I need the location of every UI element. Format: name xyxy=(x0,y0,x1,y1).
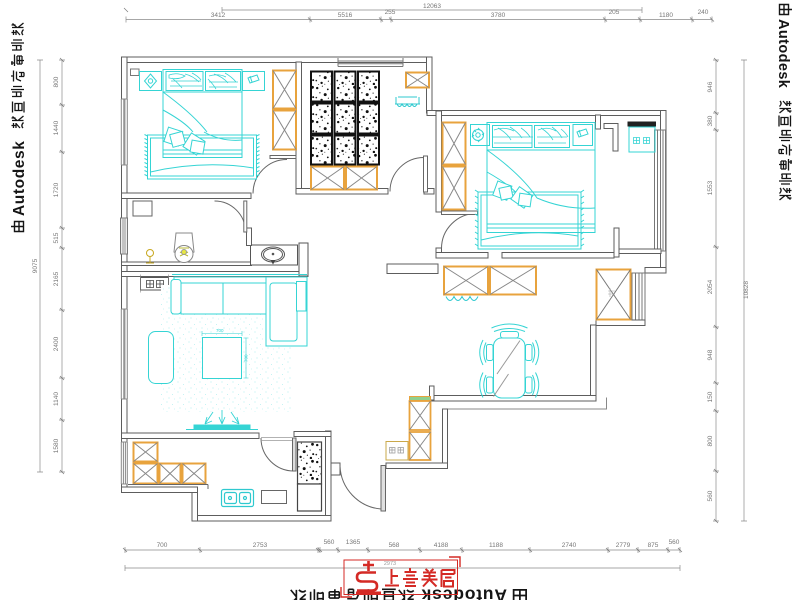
svg-text:2400: 2400 xyxy=(53,336,60,351)
svg-text:3780: 3780 xyxy=(491,12,506,19)
svg-text:2973: 2973 xyxy=(384,561,396,567)
svg-text:1140: 1140 xyxy=(53,392,60,406)
svg-text:1180: 1180 xyxy=(659,12,673,19)
svg-text:255: 255 xyxy=(385,9,396,16)
svg-text:1553: 1553 xyxy=(707,180,714,195)
svg-text:Autodesk: Autodesk xyxy=(775,19,791,89)
svg-text:1720: 1720 xyxy=(53,182,60,197)
svg-text:560: 560 xyxy=(669,539,680,546)
svg-text:700: 700 xyxy=(244,354,249,362)
svg-text:568: 568 xyxy=(389,542,400,549)
svg-text:10828: 10828 xyxy=(743,281,750,299)
svg-text:Autodesk: Autodesk xyxy=(421,586,507,600)
svg-text:2779: 2779 xyxy=(616,542,631,549)
svg-text:12063: 12063 xyxy=(423,3,441,10)
svg-text:946: 946 xyxy=(707,81,714,92)
svg-text:5516: 5516 xyxy=(338,12,353,19)
svg-text:948: 948 xyxy=(707,349,714,360)
svg-text:800: 800 xyxy=(53,76,60,87)
svg-text:9075: 9075 xyxy=(32,258,39,273)
svg-text:1580: 1580 xyxy=(53,438,60,453)
svg-text:700: 700 xyxy=(157,542,168,549)
svg-text:1440: 1440 xyxy=(53,120,60,135)
svg-text:2165: 2165 xyxy=(53,271,60,286)
svg-text:700: 700 xyxy=(216,328,224,333)
svg-text:800: 800 xyxy=(707,435,714,446)
svg-text:380: 380 xyxy=(707,115,714,126)
svg-text:240: 240 xyxy=(698,9,709,16)
svg-text:1188: 1188 xyxy=(489,542,503,549)
svg-text:515: 515 xyxy=(53,232,60,243)
svg-text:560: 560 xyxy=(707,490,714,501)
svg-text:2054: 2054 xyxy=(707,279,714,294)
svg-text:875: 875 xyxy=(648,542,659,549)
svg-text:3412: 3412 xyxy=(211,12,226,19)
svg-text:205: 205 xyxy=(609,9,620,16)
svg-text:1365: 1365 xyxy=(346,539,361,546)
svg-text:Autodesk: Autodesk xyxy=(11,141,28,216)
svg-text:150: 150 xyxy=(707,391,714,402)
svg-text:2740: 2740 xyxy=(562,542,577,549)
svg-text:560: 560 xyxy=(324,539,335,546)
svg-text:4188: 4188 xyxy=(434,542,449,549)
svg-text:2753: 2753 xyxy=(253,542,268,549)
